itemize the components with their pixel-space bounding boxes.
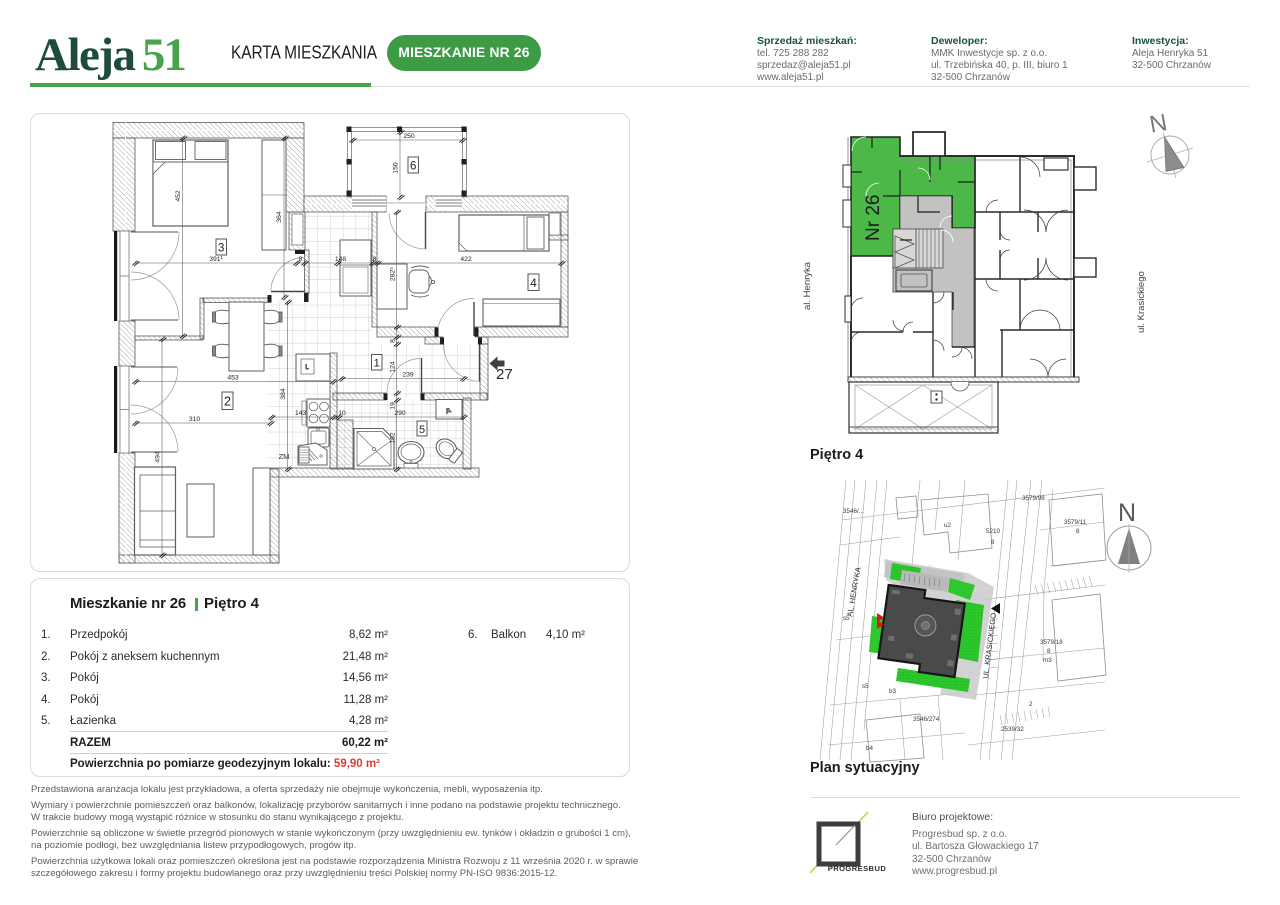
svg-text:250: 250: [403, 133, 415, 140]
svg-text:al. Henryka: al. Henryka: [802, 261, 813, 310]
svg-text:AL. HENRYKA: AL. HENRYKA: [845, 566, 863, 618]
svg-text:Plan sytuacyjny: Plan sytuacyjny: [810, 760, 920, 776]
svg-text:5: 5: [419, 424, 425, 436]
svg-text:3579/18: 3579/18: [1040, 639, 1063, 646]
svg-text:p.: p.: [446, 407, 452, 414]
svg-text:PROGRESBUD: PROGRESBUD: [828, 864, 887, 873]
svg-text:10: 10: [338, 410, 346, 417]
svg-text:2: 2: [1029, 701, 1033, 708]
svg-text:N: N: [1147, 109, 1169, 139]
svg-text:239: 239: [402, 372, 414, 379]
svg-text:3546/...: 3546/...: [843, 508, 864, 515]
svg-text:162: 162: [390, 432, 397, 444]
svg-text:3579/11: 3579/11: [1064, 519, 1087, 526]
svg-text:2539/32: 2539/32: [1001, 726, 1024, 733]
svg-text:2: 2: [224, 395, 231, 409]
svg-text:s5: s5: [862, 683, 869, 690]
svg-text:282⁵: 282⁵: [390, 267, 397, 281]
svg-text:494: 494: [155, 451, 162, 463]
svg-text:1: 1: [374, 358, 380, 370]
svg-text:8: 8: [1076, 528, 1080, 535]
svg-text:452: 452: [175, 190, 182, 202]
svg-text:8: 8: [390, 339, 397, 343]
svg-text:310: 310: [189, 416, 201, 423]
svg-text:8: 8: [991, 539, 995, 546]
svg-text:s5: s5: [843, 615, 850, 622]
svg-text:m3: m3: [1043, 657, 1052, 664]
svg-text:Piętro 4: Piętro 4: [810, 447, 863, 463]
svg-text:3579/98: 3579/98: [1022, 495, 1045, 502]
svg-text:N: N: [1118, 499, 1136, 527]
svg-text:19: 19: [390, 402, 397, 410]
svg-text:ul. Krasickiego: ul. Krasickiego: [1136, 271, 1147, 333]
svg-text:384: 384: [280, 388, 287, 400]
svg-text:3546/274: 3546/274: [913, 716, 940, 723]
svg-text:3: 3: [218, 243, 224, 255]
svg-text:8: 8: [299, 256, 303, 263]
svg-text:391¹: 391¹: [209, 256, 223, 263]
svg-text:150: 150: [393, 162, 400, 174]
svg-text:5210: 5210: [986, 528, 1001, 535]
svg-text:ZM: ZM: [279, 452, 290, 461]
svg-text:453: 453: [227, 375, 239, 382]
svg-text:8: 8: [373, 256, 377, 263]
svg-text:8: 8: [1047, 648, 1051, 655]
svg-text:124: 124: [390, 361, 397, 373]
svg-text:290: 290: [394, 410, 406, 417]
svg-text:27: 27: [496, 366, 513, 383]
svg-text:b4: b4: [866, 745, 874, 752]
svg-text:148: 148: [335, 256, 347, 263]
svg-text:b3: b3: [889, 688, 897, 695]
svg-text:4: 4: [530, 276, 537, 290]
svg-text:364: 364: [276, 211, 283, 223]
svg-text:143: 143: [295, 410, 307, 417]
svg-text:u2: u2: [944, 522, 952, 529]
svg-text:6: 6: [410, 161, 416, 173]
svg-text:422: 422: [460, 256, 472, 263]
svg-text:Nr 26: Nr 26: [863, 195, 884, 241]
